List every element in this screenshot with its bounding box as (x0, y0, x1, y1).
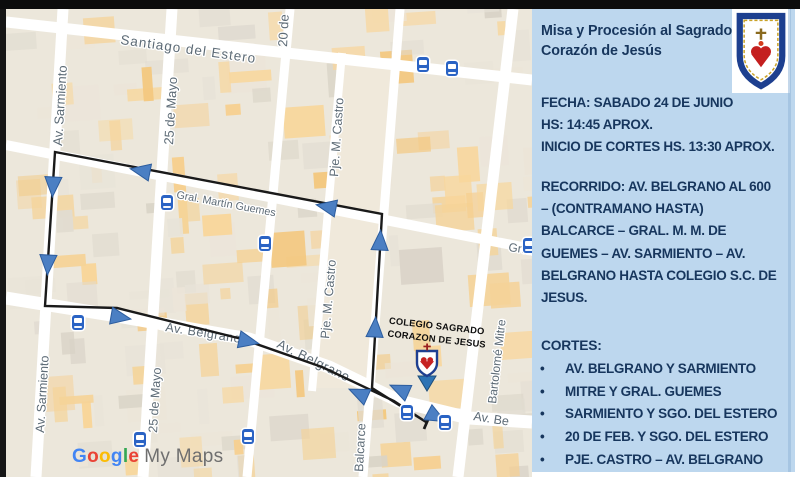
google-logo-letter: o (87, 446, 99, 467)
route-map: Santiago del Estero 20 de Av. Sarmiento … (6, 9, 532, 477)
cuts-start-time: INICIO DE CORTES HS. 13:30 APROX. (541, 136, 774, 158)
bus-stop-icon[interactable] (446, 61, 458, 76)
bus-stop-icon[interactable] (72, 315, 84, 330)
route-line: GUEMES – AV. SARMIENTO – AV. (541, 243, 777, 265)
bus-stop-icon[interactable] (417, 57, 429, 72)
cortes-heading: CORTES: (541, 338, 602, 353)
flyer-title: Misa y Procesión al Sagrado Corazón de J… (541, 22, 743, 61)
bus-stop-icon[interactable] (259, 236, 271, 251)
corte-item: 20 DE FEB. Y SGO. DEL ESTERO (532, 426, 787, 449)
google-my-maps-watermark[interactable]: GoogleMy Maps (72, 446, 223, 468)
info-panel: Misa y Procesión al Sagrado Corazón de J… (532, 9, 795, 472)
route-line: RECORRIDO: AV. BELGRANO AL 600 (541, 176, 777, 198)
google-logo-letter: o (99, 446, 111, 467)
bus-stop-icon[interactable] (161, 195, 173, 210)
school-crest (732, 9, 790, 93)
corte-item: AV. BELGRANO Y SARMIENTO (532, 358, 787, 381)
google-logo-letter: e (128, 446, 139, 467)
route-line: JESUS. (541, 287, 777, 309)
route-line: BALCARCE – GRAL. M. M. DE (541, 220, 777, 242)
street-label-25-de-mayo-low: 25 de Mayo (146, 367, 164, 433)
bus-stop-icon[interactable] (134, 432, 146, 447)
school-crest-icon (736, 12, 786, 90)
google-logo-letter: g (111, 446, 123, 467)
street-label-sarmiento-low: Av. Sarmiento (33, 355, 52, 433)
my-maps-label: My Maps (144, 446, 223, 467)
bus-stop-icon[interactable] (523, 238, 532, 253)
flyer: { "panel": { "title": "Misa y Procesión … (0, 0, 800, 500)
event-date: FECHA: SABADO 24 DE JUNIO (541, 92, 774, 114)
cortes-list: AV. BELGRANO Y SARMIENTO MITRE Y GRAL. G… (532, 358, 787, 471)
route-description: RECORRIDO: AV. BELGRANO AL 600 – (CONTRA… (541, 176, 777, 309)
bus-stop-icon[interactable] (401, 405, 413, 420)
google-logo-letter: G (72, 446, 87, 467)
street-label-balcarce: Balcarce (352, 423, 369, 472)
street-label-25-de-mayo-top: 25 de Mayo (161, 76, 180, 145)
bus-stop-icon[interactable] (242, 429, 254, 444)
corte-item: SARMIENTO Y SGO. DEL ESTERO (532, 403, 787, 426)
event-details: FECHA: SABADO 24 DE JUNIO HS: 14:45 APRO… (541, 92, 774, 159)
corte-item: PJE. CASTRO – AV. BELGRANO (532, 449, 787, 472)
street-label-20-de-febrero: 20 de (275, 14, 292, 47)
corte-item: MITRE Y GRAL. GUEMES (532, 381, 787, 404)
bus-stop-icon[interactable] (439, 415, 451, 430)
event-time: HS: 14:45 APROX. (541, 114, 774, 136)
top-black-bar (0, 0, 800, 9)
route-line: – (CONTRAMANO HASTA) (541, 198, 777, 220)
street-label-mitre: Bartolomé Mitre (485, 318, 509, 404)
route-line: BELGRANO HASTA COLEGIO S.C. DE (541, 265, 777, 287)
